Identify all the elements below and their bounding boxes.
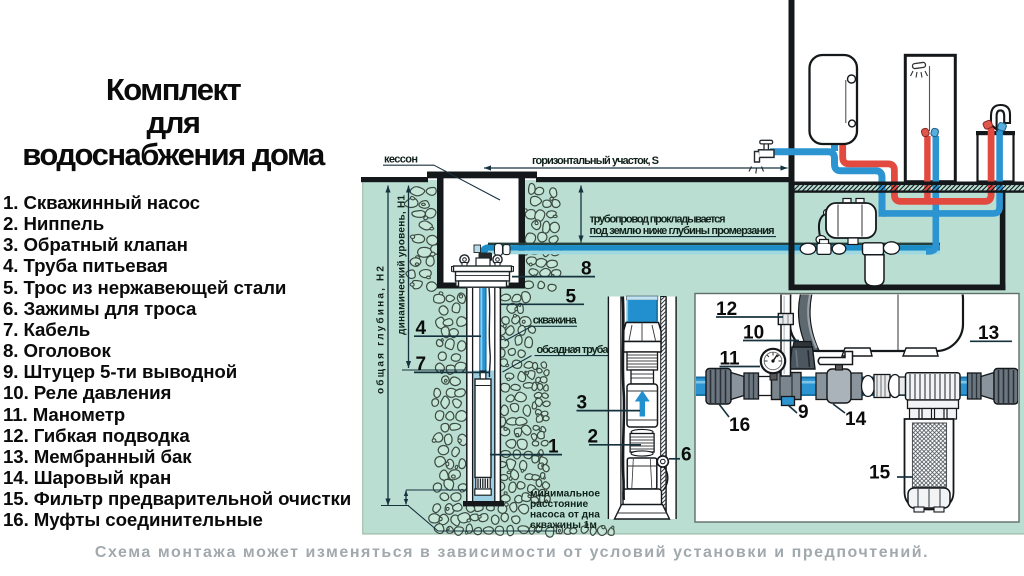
svg-text:3: 3 [577, 392, 588, 413]
svg-text:под землю ниже глубины промерз: под землю ниже глубины промерзания [590, 225, 775, 237]
svg-text:7: 7 [416, 354, 427, 375]
svg-text:скважина: скважина [533, 315, 578, 327]
svg-text:4: 4 [416, 318, 427, 339]
svg-text:расстояние: расстояние [530, 499, 589, 510]
svg-text:16: 16 [729, 415, 750, 436]
svg-text:9: 9 [798, 402, 809, 423]
svg-text:2: 2 [588, 427, 599, 448]
svg-text:кессон: кессон [384, 154, 418, 166]
svg-text:6: 6 [681, 445, 692, 466]
svg-text:общая глубина, Н2: общая глубина, Н2 [375, 266, 387, 394]
svg-text:скважины 1м: скважины 1м [530, 520, 597, 531]
svg-text:обсадная труба: обсадная труба [537, 344, 610, 356]
svg-text:динамический уровень, Н1: динамический уровень, Н1 [397, 195, 408, 335]
svg-text:5: 5 [566, 286, 577, 307]
svg-text:15: 15 [869, 463, 891, 484]
svg-text:насоса от дна: насоса от дна [530, 510, 600, 521]
svg-text:14: 14 [845, 409, 867, 430]
svg-text:1: 1 [548, 436, 559, 457]
svg-text:минимальное: минимальное [530, 489, 600, 500]
svg-text:трубопровод прокладывается: трубопровод прокладывается [590, 214, 726, 226]
svg-text:8: 8 [581, 259, 592, 280]
svg-text:горизонтальный участок, S: горизонтальный участок, S [532, 155, 659, 167]
